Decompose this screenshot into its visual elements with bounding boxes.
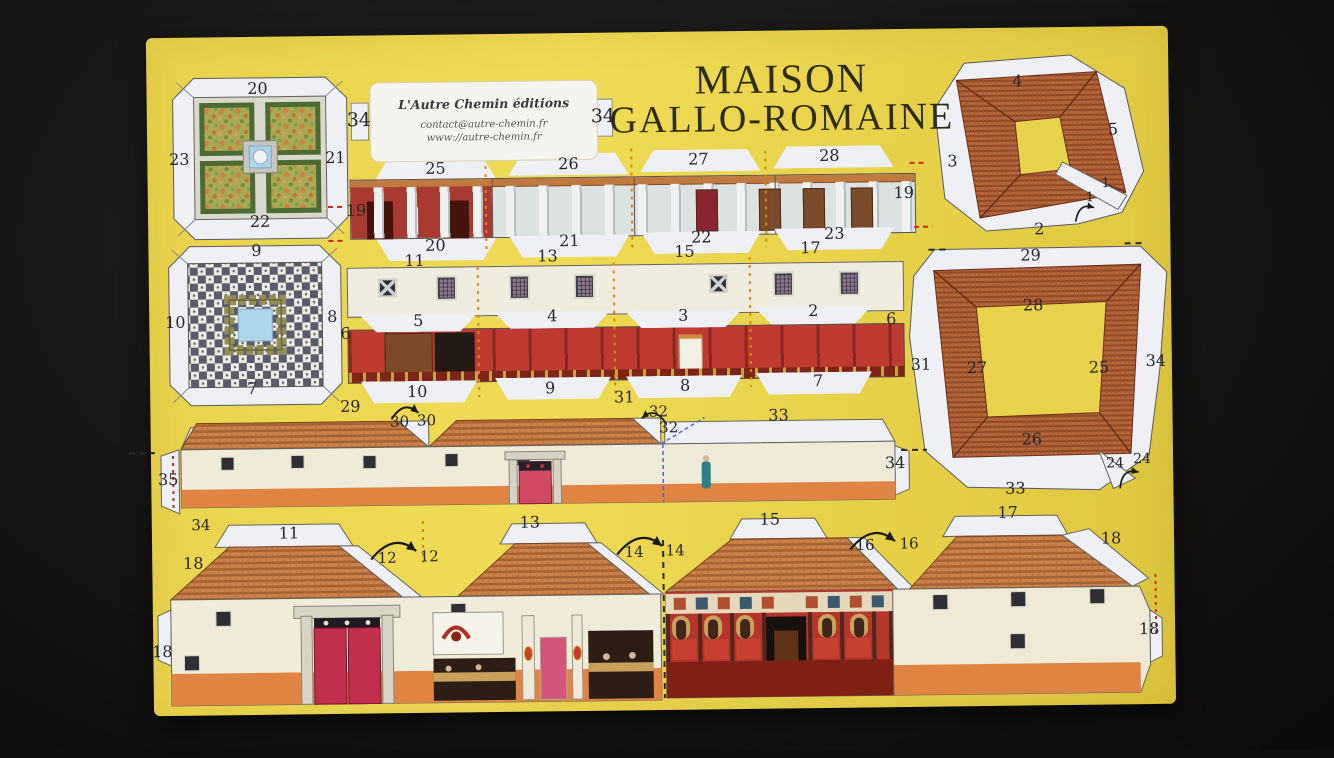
part-number-label: 4: [1012, 74, 1022, 90]
part-number-label: 22: [250, 214, 271, 230]
part-number-label: 35: [158, 472, 179, 488]
part-number-label: 3: [947, 153, 957, 169]
part-number-label: 23: [824, 226, 845, 242]
part-number-label: 17: [997, 505, 1018, 521]
part-number-label: 28: [1023, 297, 1044, 313]
part-number-label: 26: [558, 156, 579, 172]
part-number-label: 6: [340, 326, 350, 342]
part-number-label: 32: [659, 420, 678, 435]
part-number-label: 27: [967, 360, 988, 376]
part-number-label: 9: [251, 243, 261, 259]
part-number-label: 25: [1089, 360, 1110, 376]
part-number-label: 20: [247, 81, 268, 97]
part-number-label: 31: [614, 389, 635, 405]
part-number-label: 15: [674, 244, 695, 260]
part-number-label: 10: [165, 315, 186, 331]
part-number-label: 6: [886, 311, 896, 327]
part-number-label: 14: [625, 545, 644, 560]
part-number-label: 24: [1106, 456, 1124, 470]
part-number-label: 33: [1005, 481, 1026, 497]
part-number-label: 21: [559, 233, 580, 249]
part-number-label: 30: [417, 413, 436, 428]
part-number-label: 30: [390, 415, 409, 430]
part-number-label: 19: [894, 185, 915, 201]
part-number-label: 26: [1022, 431, 1043, 447]
part-number-label: 23: [169, 152, 190, 168]
part-number-label: 3: [678, 308, 688, 324]
part-number-label: 20: [425, 238, 446, 254]
part-number-label: 18: [152, 644, 173, 660]
part-number-label: 21: [325, 150, 346, 166]
part-number-label: 34: [1146, 353, 1167, 369]
part-number-label: 19: [346, 203, 367, 219]
part-number-label: 34: [591, 107, 615, 126]
part-number-label: 12: [378, 551, 397, 566]
part-number-label: 13: [520, 514, 541, 530]
part-number-label: 25: [425, 161, 446, 177]
part-number-label: 34: [885, 455, 906, 471]
part-number-label: 2: [1034, 221, 1044, 237]
part-number-label: 24: [1133, 452, 1151, 466]
photo-backdrop: MAISON GALLO-ROMAINE L'Autre Chemin édit…: [0, 0, 1334, 750]
part-number-label: 11: [279, 525, 300, 541]
part-number-label: 32: [649, 404, 668, 419]
part-number-label: 10: [407, 384, 428, 400]
part-number-label: 29: [340, 399, 361, 415]
part-number-label: 7: [247, 381, 257, 397]
part-number-label: 1: [1101, 177, 1109, 190]
part-number-label: 12: [420, 549, 439, 564]
part-number-label: 18: [1139, 621, 1160, 637]
part-number-label: 16: [855, 538, 874, 553]
part-number-label: 8: [327, 309, 337, 325]
part-number-label: 27: [688, 151, 709, 167]
part-number-label: 13: [537, 248, 558, 264]
part-number-label: 16: [899, 536, 918, 551]
part-number-label: 17: [800, 240, 821, 256]
part-number-label: 4: [547, 308, 557, 324]
part-number-label: 2: [808, 303, 818, 319]
part-number-labels: 2023212291087343425262728191920212223111…: [0, 0, 1334, 758]
part-number-label: 34: [191, 518, 210, 533]
part-number-label: 8: [680, 378, 690, 394]
part-number-label: 18: [1101, 530, 1122, 546]
part-number-label: 18: [183, 556, 204, 572]
part-number-label: 31: [911, 357, 932, 373]
photo-rotation-wrap: MAISON GALLO-ROMAINE L'Autre Chemin édit…: [0, 0, 1334, 758]
part-number-label: 28: [819, 148, 840, 164]
part-number-label: 33: [768, 407, 789, 423]
part-number-label: 34: [347, 111, 371, 130]
part-number-label: 5: [1108, 121, 1118, 137]
part-number-label: 29: [1020, 247, 1041, 263]
part-number-label: 11: [404, 253, 425, 269]
part-number-label: 7: [813, 373, 823, 389]
part-number-label: 14: [666, 543, 685, 558]
part-number-label: 5: [413, 313, 423, 329]
part-number-label: 1: [1086, 191, 1094, 204]
part-number-label: 15: [759, 512, 780, 528]
part-number-label: 9: [545, 380, 555, 396]
